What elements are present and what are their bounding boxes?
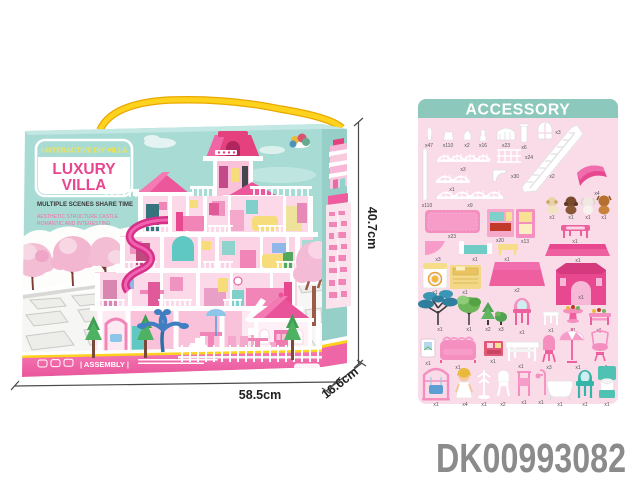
svg-text:ROMANTIC AND INTERESTING: ROMANTIC AND INTERESTING	[37, 221, 110, 227]
svg-text:x20: x20	[496, 238, 504, 244]
svg-text:x2: x2	[464, 143, 470, 149]
svg-text:x1: x1	[585, 215, 591, 221]
svg-text:x1: x1	[521, 400, 527, 406]
svg-text:x1: x1	[549, 215, 555, 221]
svg-text:VILLA: VILLA	[62, 177, 107, 194]
svg-text:x4: x4	[462, 402, 468, 408]
svg-text:x1: x1	[466, 327, 472, 333]
svg-text:x1: x1	[490, 359, 496, 365]
svg-text:x1: x1	[557, 402, 563, 408]
svg-text:x110: x110	[443, 143, 454, 149]
svg-text:x16: x16	[479, 143, 487, 149]
svg-text:58.5cm: 58.5cm	[239, 388, 281, 402]
svg-text:x30: x30	[511, 174, 519, 180]
svg-text:AESTHETIC STRUCTURE CASTLE: AESTHETIC STRUCTURE CASTLE	[37, 214, 119, 220]
svg-text:x2: x2	[549, 174, 555, 180]
svg-text:x3: x3	[435, 257, 441, 263]
svg-text:x3: x3	[555, 130, 561, 136]
svg-text:x1: x1	[582, 402, 588, 408]
svg-text:x3: x3	[546, 365, 552, 371]
svg-text:x2: x2	[514, 288, 520, 294]
svg-text:40.7cm: 40.7cm	[365, 207, 379, 249]
svg-text:LUXURY: LUXURY	[52, 161, 116, 178]
svg-text:x1: x1	[518, 364, 524, 370]
svg-text:ACCESSORY: ACCESSORY	[466, 102, 571, 119]
svg-text:x1: x1	[425, 361, 431, 367]
svg-text:x2: x2	[485, 327, 491, 333]
svg-text:x1: x1	[601, 215, 607, 221]
svg-text:x23: x23	[448, 234, 456, 240]
svg-text:I-INTERACTIVE DIY VILLA: I-INTERACTIVE DIY VILLA	[41, 148, 128, 155]
svg-text:x47: x47	[425, 143, 433, 149]
svg-text:x13: x13	[521, 239, 529, 245]
svg-text:x1: x1	[568, 215, 574, 221]
svg-text:| ASSEMBLY |: | ASSEMBLY |	[80, 360, 129, 369]
svg-text:x1: x1	[481, 402, 487, 408]
svg-text:x1: x1	[548, 328, 554, 334]
svg-text:x1: x1	[575, 365, 581, 371]
svg-text:x6: x6	[521, 145, 527, 151]
svg-text:x1: x1	[462, 290, 468, 296]
svg-text:DK00993082: DK00993082	[436, 435, 626, 480]
svg-text:x1: x1	[437, 327, 443, 333]
svg-text:x1: x1	[433, 402, 439, 408]
svg-text:x3: x3	[460, 167, 466, 173]
svg-text:x1: x1	[538, 400, 544, 406]
svg-text:x9: x9	[467, 203, 473, 209]
svg-text:x1: x1	[472, 257, 478, 263]
svg-text:x1: x1	[519, 330, 525, 336]
svg-text:x24: x24	[525, 155, 533, 161]
svg-text:x3: x3	[498, 327, 504, 333]
svg-text:x1: x1	[449, 187, 455, 193]
svg-text:MULTIPLE SCENES SHARE TIME: MULTIPLE SCENES SHARE TIME	[37, 201, 133, 208]
svg-text:x1: x1	[604, 402, 610, 408]
svg-text:x1: x1	[578, 295, 584, 301]
svg-text:x110: x110	[422, 203, 433, 209]
svg-text:x2: x2	[500, 402, 506, 408]
svg-text:x23: x23	[502, 143, 510, 149]
